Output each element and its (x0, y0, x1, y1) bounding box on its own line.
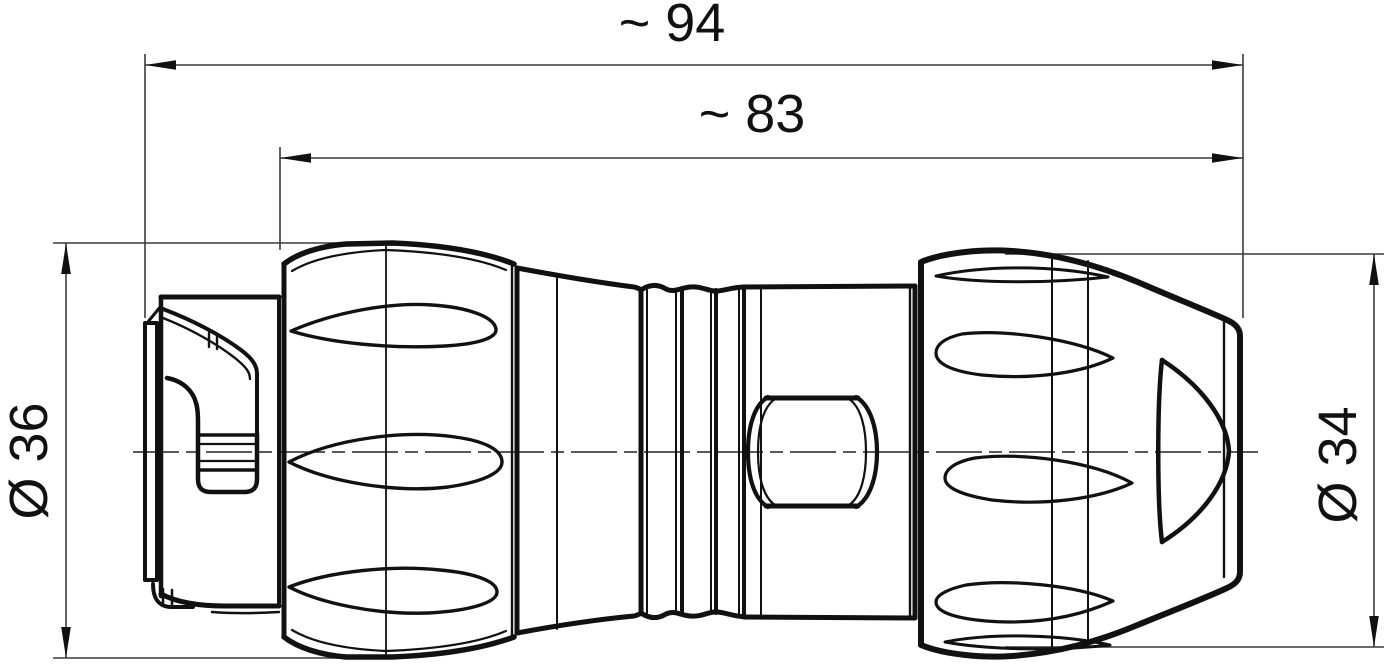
nut-grip-cutout-top (936, 333, 1113, 377)
taper-section (517, 268, 641, 633)
connector-technical-drawing: ~ 94 ~ 83 Ø 36 Ø 34 (0, 0, 1386, 664)
grip-body-left (284, 243, 517, 657)
taper-top-edge (517, 268, 641, 290)
cable-opening-left (1158, 360, 1162, 542)
connector-outline (145, 243, 1240, 657)
seal-pocket (198, 434, 257, 492)
arrowhead-up (1369, 254, 1379, 285)
taper-bottom-edge (517, 613, 641, 633)
drawing-canvas: ~ 94 ~ 83 Ø 36 Ø 34 (0, 0, 1386, 664)
rear-top-edge (744, 286, 915, 287)
rear-nut (921, 250, 1240, 656)
arrowhead-down (1369, 616, 1379, 647)
flange-bottom-edge (161, 594, 279, 606)
arrowhead-left (145, 60, 176, 70)
left-diameter-label: Ø 36 (0, 402, 59, 519)
rings-top-edge (641, 285, 746, 291)
cable-opening-arc (1162, 360, 1229, 542)
dimension-body-length: ~ 83 (280, 84, 1243, 250)
body-length-label: ~ 83 (699, 84, 806, 144)
grip-cutout-top (291, 304, 496, 346)
right-diameter-label: Ø 34 (1308, 406, 1368, 523)
nut-groove-top-sliver (936, 268, 1108, 282)
rings-bottom-edge (641, 612, 746, 618)
overall-length-label: ~ 94 (619, 0, 726, 53)
arrowhead-left (280, 153, 311, 163)
arrowhead-right (1212, 153, 1243, 163)
front-coupling (145, 297, 279, 613)
rear-bottom-edge (744, 617, 915, 618)
flange-bottom-inner (212, 612, 279, 613)
nut-grip-cutout-bottom (936, 583, 1113, 622)
nut-outline (921, 250, 1240, 656)
nut-grip-cutout-middle (945, 456, 1132, 502)
grip-cutout-middle (289, 435, 502, 489)
slot-inner-curve (167, 378, 198, 434)
arrowhead-right (1212, 60, 1243, 70)
grip-cutout-bottom (289, 568, 497, 613)
arrowhead-up (61, 243, 71, 274)
arrowhead-down (61, 627, 71, 658)
